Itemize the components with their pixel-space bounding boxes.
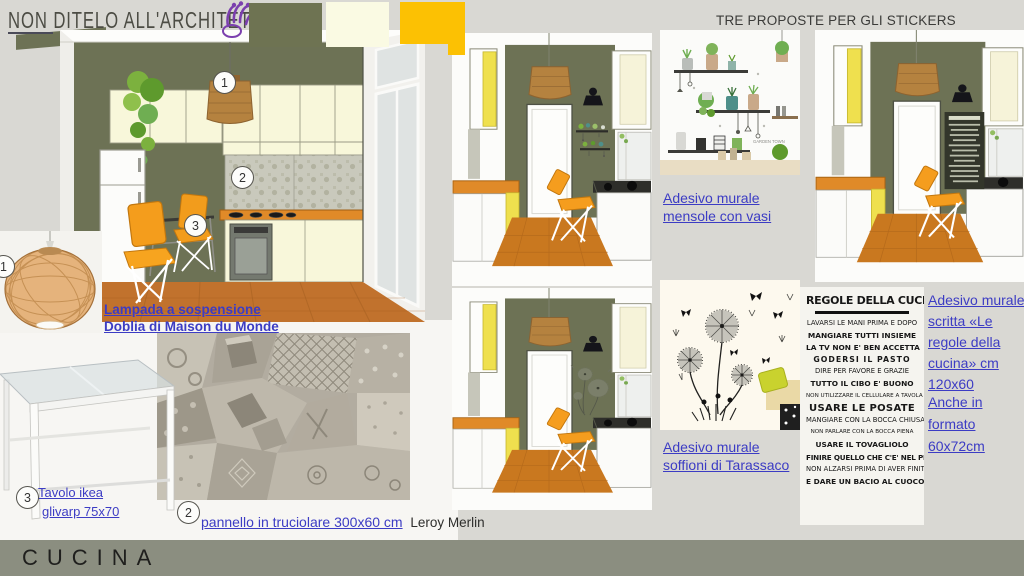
- callout-number: 1: [221, 76, 228, 90]
- callout-number: 2: [185, 506, 192, 520]
- rules-alt-format-link[interactable]: Anche in formato 60x72cm: [928, 391, 985, 457]
- kitchen-render-dandelion-sticker: [452, 288, 652, 510]
- poster-line: USARE LE POSATE: [806, 404, 918, 414]
- poster-line: MANGIARE TUTTI INSIEME: [806, 331, 918, 341]
- shelf-sticker-link[interactable]: Adesivo murale mensole con vasi: [663, 189, 771, 225]
- palette-swatch-cream: [326, 2, 389, 47]
- poster-line: USARE IL TOVAGLIOLO: [806, 440, 918, 450]
- poster-line: FINIRE QUELLO CHE C'E' NEL PIATTO: [806, 453, 918, 463]
- page-title: CUCINA: [22, 545, 160, 571]
- link-line[interactable]: mensole con vasi: [663, 207, 771, 225]
- callout-2-render: 2: [231, 166, 254, 189]
- callout-1-render: 1: [213, 71, 236, 94]
- panel-link-row: pannello in truciolare 300x60 cm Leroy M…: [201, 513, 485, 531]
- link-line[interactable]: Adesivo murale: [928, 290, 1024, 311]
- poster-divider: [815, 311, 909, 314]
- poster-line: LA TV NON E' BEN ACCETTA: [806, 343, 918, 353]
- kitchen-render-shelf-sticker: [452, 33, 652, 286]
- dandelion-sticker-link[interactable]: Adesivo murale soffioni di Tarassaco: [663, 438, 789, 474]
- link-line[interactable]: Tavolo ikea: [38, 483, 119, 502]
- panel-retailer-label: Leroy Merlin: [410, 515, 484, 530]
- palette-swatch-yellow-small: [448, 30, 465, 55]
- link-line[interactable]: formato: [928, 413, 985, 435]
- link-line[interactable]: 60x72cm: [928, 435, 985, 457]
- patchwork-panel-photo: [157, 333, 410, 500]
- design-board: NON DITELO ALL'ARCHITETTO: [0, 0, 1024, 576]
- shelf-sticker-photo: GARDEN TOWN: [660, 30, 800, 175]
- link-line[interactable]: Doblia di Maison du Monde: [104, 318, 279, 335]
- pendant-lamp-photo: [0, 231, 102, 333]
- callout-3-render: 3: [184, 214, 207, 237]
- rules-poster: REGOLE DELLA CUCINA LAVARSI LE MANI PRIM…: [800, 287, 924, 525]
- glass-door: [376, 40, 418, 306]
- stickers-heading: TRE PROPOSTE PER GLI STICKERS: [716, 13, 956, 28]
- chipboard-panel-link[interactable]: pannello in truciolare 300x60 cm: [201, 514, 403, 530]
- poster-line: LAVARSI LE MANI PRIMA E DOPO: [806, 319, 918, 329]
- callout-3-table-photo: 3: [16, 486, 39, 509]
- link-line[interactable]: cucina» cm: [928, 353, 1024, 374]
- link-line[interactable]: glivarp 75x70: [38, 502, 119, 521]
- poster-line: MANGIARE CON LA BOCCA CHIUSA: [806, 416, 918, 426]
- palette-swatch-olive: [249, 3, 322, 47]
- callout-2-panel-photo: 2: [177, 501, 200, 524]
- ikea-table-link[interactable]: Tavolo ikea glivarp 75x70: [38, 483, 119, 521]
- poster-line: NON ALZARSI PRIMA DI AVER FINITO: [806, 465, 918, 475]
- poster-line: DIRE PER FAVORE E GRAZIE: [806, 367, 918, 377]
- link-line[interactable]: Anche in: [928, 391, 985, 413]
- callout-number: 3: [192, 219, 199, 233]
- poster-title: REGOLE DELLA CUCINA: [806, 294, 918, 307]
- callout-number: 3: [24, 491, 31, 505]
- poster-line: GODERSI IL PASTO: [806, 355, 918, 365]
- poster-line: TUTTO IL CIBO E' BUONO: [806, 379, 918, 389]
- poster-line: NON UTILIZZARE IL CELLULARE A TAVOLA: [806, 392, 918, 402]
- link-line[interactable]: Adesivo murale: [663, 438, 789, 456]
- link-line[interactable]: scritta «Le: [928, 311, 1024, 332]
- callout-number: 2: [239, 171, 246, 185]
- mini-rules-sticker: [945, 112, 985, 189]
- rules-sticker-link[interactable]: Adesivo murale scritta «Le regole della …: [928, 290, 1024, 395]
- shelf-sticker-caption: GARDEN TOWN: [753, 139, 785, 144]
- link-line[interactable]: soffioni di Tarassaco: [663, 456, 789, 474]
- oven: [230, 224, 272, 280]
- poster-line: E DARE UN BACIO AL CUOCO: [806, 477, 918, 487]
- lamp-product-link[interactable]: Lampada a sospensione Doblia di Maison d…: [104, 301, 279, 335]
- logo-underline: [8, 32, 53, 34]
- dandelion-sticker-photo: [660, 280, 800, 430]
- link-line[interactable]: Adesivo murale: [663, 189, 771, 207]
- link-line[interactable]: Lampada a sospensione: [104, 301, 279, 318]
- link-line[interactable]: regole della: [928, 332, 1024, 353]
- callout-number: 1: [0, 260, 7, 274]
- poster-line: NON PARLARE CON LA BOCCA PIENA: [806, 428, 918, 438]
- kitchen-render-rules-sticker: [815, 30, 1024, 282]
